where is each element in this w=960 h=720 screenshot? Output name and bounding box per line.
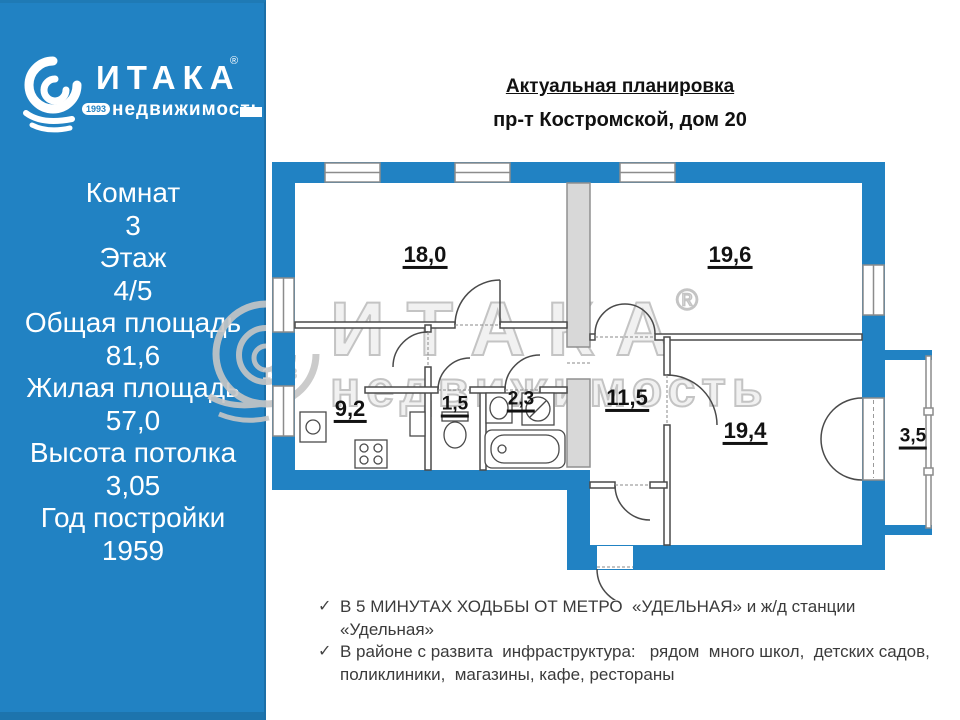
itaka-logo: ИТАКА ® 1993 недвижимость (22, 51, 248, 143)
logo-year-badge: 1993 (82, 103, 110, 115)
room-label-19-6: 19,6 (708, 243, 753, 269)
property-stats: Комнат 3 Этаж 4/5 Общая площадь 81,6 Жил… (0, 177, 266, 567)
wave-logo-icon (22, 55, 84, 133)
room-label-2-3: 2,3 (507, 390, 535, 413)
room-label-1-5: 1,5 (441, 395, 469, 418)
bullet-text-metro: В 5 МИНУТАХ ХОДЬБЫ ОТ МЕТРО «УДЕЛЬНАЯ» и… (340, 596, 954, 641)
floor-plan (270, 150, 960, 600)
list-item: поликлиники, магазины, кафе, рестораны (318, 664, 954, 687)
logo-brand-text: ИТАКА (96, 59, 241, 97)
stat-rooms-value: 3 (0, 210, 266, 243)
highlights-list: ✓ В 5 МИНУТАХ ХОДЬБЫ ОТ МЕТРО «УДЕЛЬНАЯ»… (318, 596, 954, 686)
check-icon-empty (318, 664, 340, 687)
bullet-text-infrastructure: В районе с развита инфраструктура: рядом… (340, 641, 930, 664)
room-label-9-2: 9,2 (334, 397, 367, 423)
stat-ceiling-value: 3,05 (0, 470, 266, 503)
address-line: пр-т Костромской, дом 20 (420, 109, 820, 132)
title-block: Актуальная планировка пр-т Костромской, … (420, 76, 820, 132)
logo-dash-decoration (240, 107, 262, 117)
stat-living-area-value: 57,0 (0, 405, 266, 438)
sidebar-bottom-strip (0, 712, 264, 720)
stat-rooms-label: Комнат (0, 177, 266, 210)
stat-ceiling-label: Высота потолка (0, 437, 266, 470)
check-icon: ✓ (318, 641, 340, 664)
bathtub-icon (485, 430, 565, 468)
stat-year-label: Год постройки (0, 502, 266, 535)
room-label-19-4: 19,4 (723, 419, 768, 445)
room-label-3-5: 3,5 (899, 427, 927, 450)
room-label-11-5: 11,5 (605, 386, 649, 412)
list-item: ✓ В 5 МИНУТАХ ХОДЬБЫ ОТ МЕТРО «УДЕЛЬНАЯ»… (318, 596, 954, 641)
stat-floor-label: Этаж (0, 242, 266, 275)
kitchen-sink-icon (300, 412, 326, 442)
check-icon: ✓ (318, 596, 340, 641)
stat-total-area-value: 81,6 (0, 340, 266, 373)
stat-total-area-label: Общая площадь (0, 307, 266, 340)
stat-living-area-label: Жилая площадь (0, 372, 266, 405)
stat-floor-value: 4/5 (0, 275, 266, 308)
ventilation-shafts (567, 183, 590, 467)
outer-walls (272, 162, 932, 570)
stove-icon (355, 440, 387, 468)
sidebar: ИТАКА ® 1993 недвижимость Комнат 3 Этаж … (0, 0, 266, 720)
list-item: ✓ В районе с развита инфраструктура: ряд… (318, 641, 954, 664)
logo-registered-mark: ® (230, 55, 238, 67)
stat-year-value: 1959 (0, 535, 266, 568)
page-title: Актуальная планировка (420, 76, 820, 98)
room-label-18: 18,0 (403, 243, 448, 269)
basin-icon (410, 412, 425, 436)
bullet-text-infrastructure-cont: поликлиники, магазины, кафе, рестораны (340, 664, 674, 687)
